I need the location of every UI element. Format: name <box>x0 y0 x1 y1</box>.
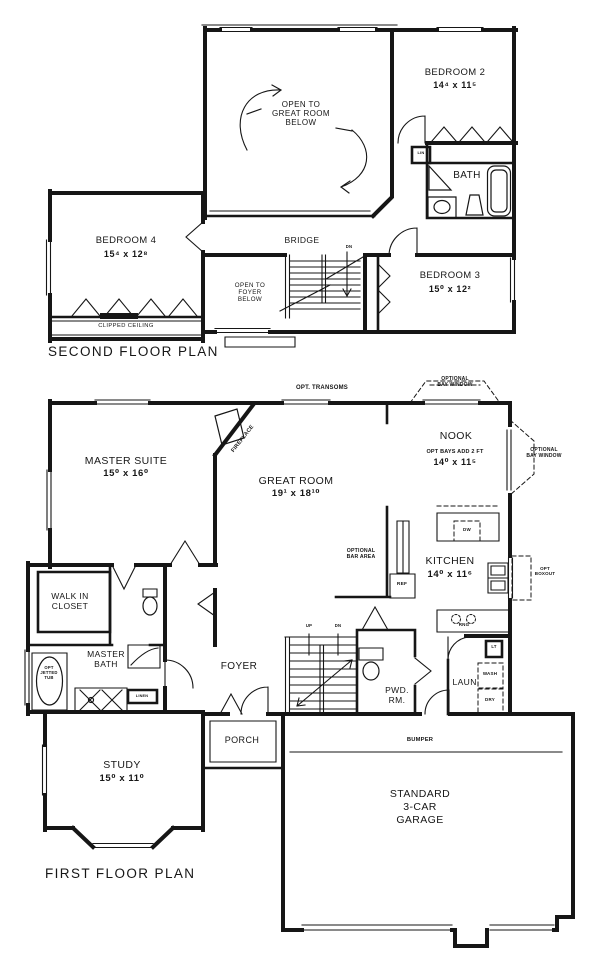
wc-toilet-bowl <box>143 597 157 615</box>
note-linen-1f: LINEN <box>136 694 148 698</box>
bar-counter <box>397 521 409 573</box>
room-study: STUDY <box>103 759 141 771</box>
dims-kitchen: 14⁰ x 11⁶ <box>427 570 472 581</box>
wc-toilet <box>143 589 157 597</box>
room-master-suite: MASTER SUITE <box>85 455 167 467</box>
kitchen-lower-counter <box>437 610 510 632</box>
vanity <box>75 688 127 712</box>
note-open-to-foyer: OPEN TO FOYER BELOW <box>235 282 265 303</box>
toilet <box>466 195 483 215</box>
room-bedroom4: BEDROOM 4 <box>96 236 157 247</box>
note-nook-opt-bays: OPT BAYS ADD 2 FT <box>426 449 483 455</box>
garage-doors <box>302 925 554 930</box>
note-washer: WASH <box>483 671 497 676</box>
note-optional-bar-area: OPTIONAL BAR AREA <box>347 549 376 561</box>
sf-stair-dn-arrow <box>343 252 351 296</box>
dims-bedroom2: 14⁴ x 11⁵ <box>433 80 477 90</box>
first-floor-title: FIRST FLOOR PLAN <box>45 866 195 881</box>
sf-door-bedroom2 <box>398 116 425 143</box>
note-bay-window-top: OPTIONAL BAY WINDOW <box>437 377 472 389</box>
note-refrigerator: REF <box>397 582 407 588</box>
note-range: RNG <box>459 622 470 627</box>
door-arcs <box>165 637 469 714</box>
second-floor-title: SECOND FLOOR PLAN <box>48 344 219 359</box>
room-bedroom3: BEDROOM 3 <box>420 271 481 282</box>
note-dryer: DRY <box>485 697 495 702</box>
ff-stair-rails <box>285 637 357 714</box>
sf-door-bedroom4 <box>186 222 203 252</box>
sf-door-chevrons-bedroom3 <box>378 264 390 314</box>
note-dn-2f: DN <box>346 245 352 250</box>
room-kitchen: KITCHEN <box>426 555 475 567</box>
shower-master <box>128 645 160 668</box>
note-clipped-ceiling: CLIPPED CEILING <box>98 323 154 330</box>
dims-study: 15⁰ x 11⁰ <box>100 774 145 785</box>
room-bath2: BATH <box>453 170 481 182</box>
dims-bedroom3: 15⁰ x 12² <box>429 284 471 294</box>
tub-surround <box>32 653 67 710</box>
note-bridge: BRIDGE <box>285 236 320 246</box>
note-dishwasher: DW <box>463 527 471 532</box>
sf-wall-fill <box>100 313 138 319</box>
room-nook: NOOK <box>440 430 473 442</box>
note-opt-jetted-tub: OPT JETTED TUB <box>40 666 57 680</box>
wall-ovens <box>488 563 508 593</box>
dims-bedroom4: 15⁴ x 12⁸ <box>104 249 148 259</box>
room-powder: PWD. RM. <box>385 686 409 706</box>
room-master-bath: MASTER BATH <box>87 650 125 670</box>
note-opt-boxout: OPT BOXOUT <box>535 566 555 576</box>
room-porch: PORCH <box>225 735 260 745</box>
shower-stall <box>429 166 451 190</box>
dims-nook: 14⁰ x 11⁵ <box>433 457 476 467</box>
dims-great-room: 19¹ x 18¹⁰ <box>272 489 320 500</box>
dims-master-suite: 15⁰ x 16⁰ <box>103 469 148 480</box>
room-walk-in-closet: WALK IN CLOSET <box>51 592 88 612</box>
note-bay-window-right: OPTIONAL BAY WINDOW <box>526 448 561 460</box>
room-bedroom2: BEDROOM 2 <box>425 68 486 79</box>
pwd-toilet-tank <box>359 648 383 660</box>
sf-door-bedroom3 <box>389 228 417 256</box>
room-foyer: FOYER <box>221 661 257 673</box>
sink-bowl <box>434 201 450 214</box>
note-linen-closet-2f: LIN <box>417 151 424 156</box>
opt-boxout-box <box>512 556 531 600</box>
pwd-toilet-bowl <box>363 662 379 680</box>
sf-open-arrow-2 <box>336 128 367 193</box>
room-laundry: LAUN. <box>452 678 479 688</box>
note-opt-transoms: OPT. TRANSOMS <box>296 385 348 392</box>
room-great-room: GREAT ROOM <box>259 475 334 487</box>
sf-kneewall-marks-bedroom2 <box>432 127 512 141</box>
room-garage: STANDARD 3-CAR GARAGE <box>390 788 450 827</box>
note-bumper: BUMPER <box>407 737 433 744</box>
note-dn-1f: DN <box>335 624 341 629</box>
floor-plan-sheet: OPEN TO GREAT ROOM BELOW BEDROOM 2 14⁴ x… <box>0 0 600 959</box>
note-light: LT <box>491 645 496 650</box>
note-up: UP <box>306 624 312 629</box>
note-open-to-great-room: OPEN TO GREAT ROOM BELOW <box>272 100 330 128</box>
